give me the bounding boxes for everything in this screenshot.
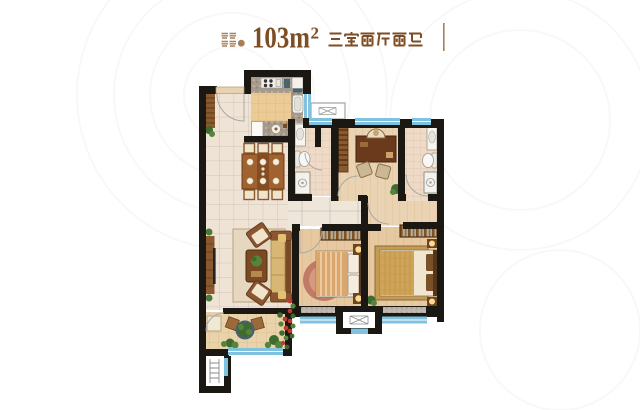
svg-text:103m: 103m <box>252 20 310 55</box>
svg-text:2: 2 <box>311 24 320 43</box>
